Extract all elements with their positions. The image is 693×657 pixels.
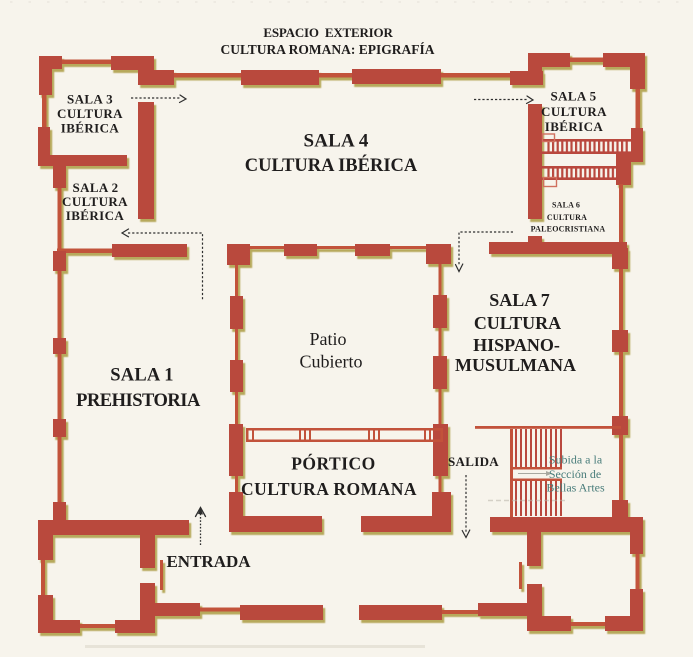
svg-text:MUSULMANA: MUSULMANA [455,355,576,375]
svg-text:SALA 1: SALA 1 [110,366,173,386]
svg-text:Cubierto: Cubierto [300,352,363,372]
svg-text:SALA 7: SALA 7 [489,290,550,310]
svg-text:SALA 6: SALA 6 [552,201,580,210]
svg-text:PALEOCRISTIANA: PALEOCRISTIANA [531,225,606,234]
svg-text:Patio: Patio [309,329,346,349]
svg-text:ENTRADA: ENTRADA [166,552,251,571]
svg-text:Bellas Artes: Bellas Artes [546,481,605,495]
svg-text:PREHISTORIA: PREHISTORIA [76,391,201,411]
svg-text:SALIDA: SALIDA [448,454,499,469]
svg-text:CULTURA ROMANA: EPIGRAFÍA: CULTURA ROMANA: EPIGRAFÍA [220,42,434,57]
svg-text:PÓRTICO: PÓRTICO [291,454,376,474]
svg-text:IBÉRICA: IBÉRICA [61,121,120,136]
svg-text:CULTURA: CULTURA [547,213,587,222]
svg-text:CULTURA: CULTURA [62,194,128,209]
svg-text:Sección de: Sección de [549,467,601,481]
svg-text:SALA 5: SALA 5 [550,89,596,104]
svg-text:CULTURA: CULTURA [541,104,607,119]
svg-text:CULTURA: CULTURA [57,106,123,121]
svg-text:SALA 4: SALA 4 [303,131,368,152]
svg-text:CULTURA ROMANA: CULTURA ROMANA [241,479,417,499]
svg-text:IBÉRICA: IBÉRICA [66,208,125,223]
svg-text:SALA 2: SALA 2 [72,180,118,195]
svg-text:SALA 3: SALA 3 [67,92,113,107]
svg-text:HISPANO-: HISPANO- [473,335,560,355]
svg-text:CULTURA: CULTURA [474,313,561,333]
svg-text:ESPACIO EXTERIOR: ESPACIO EXTERIOR [263,25,393,40]
svg-text:Subida a la: Subida a la [549,453,603,467]
svg-text:IBÉRICA: IBÉRICA [545,119,604,134]
svg-text:CULTURA IBÉRICA: CULTURA IBÉRICA [245,154,418,176]
